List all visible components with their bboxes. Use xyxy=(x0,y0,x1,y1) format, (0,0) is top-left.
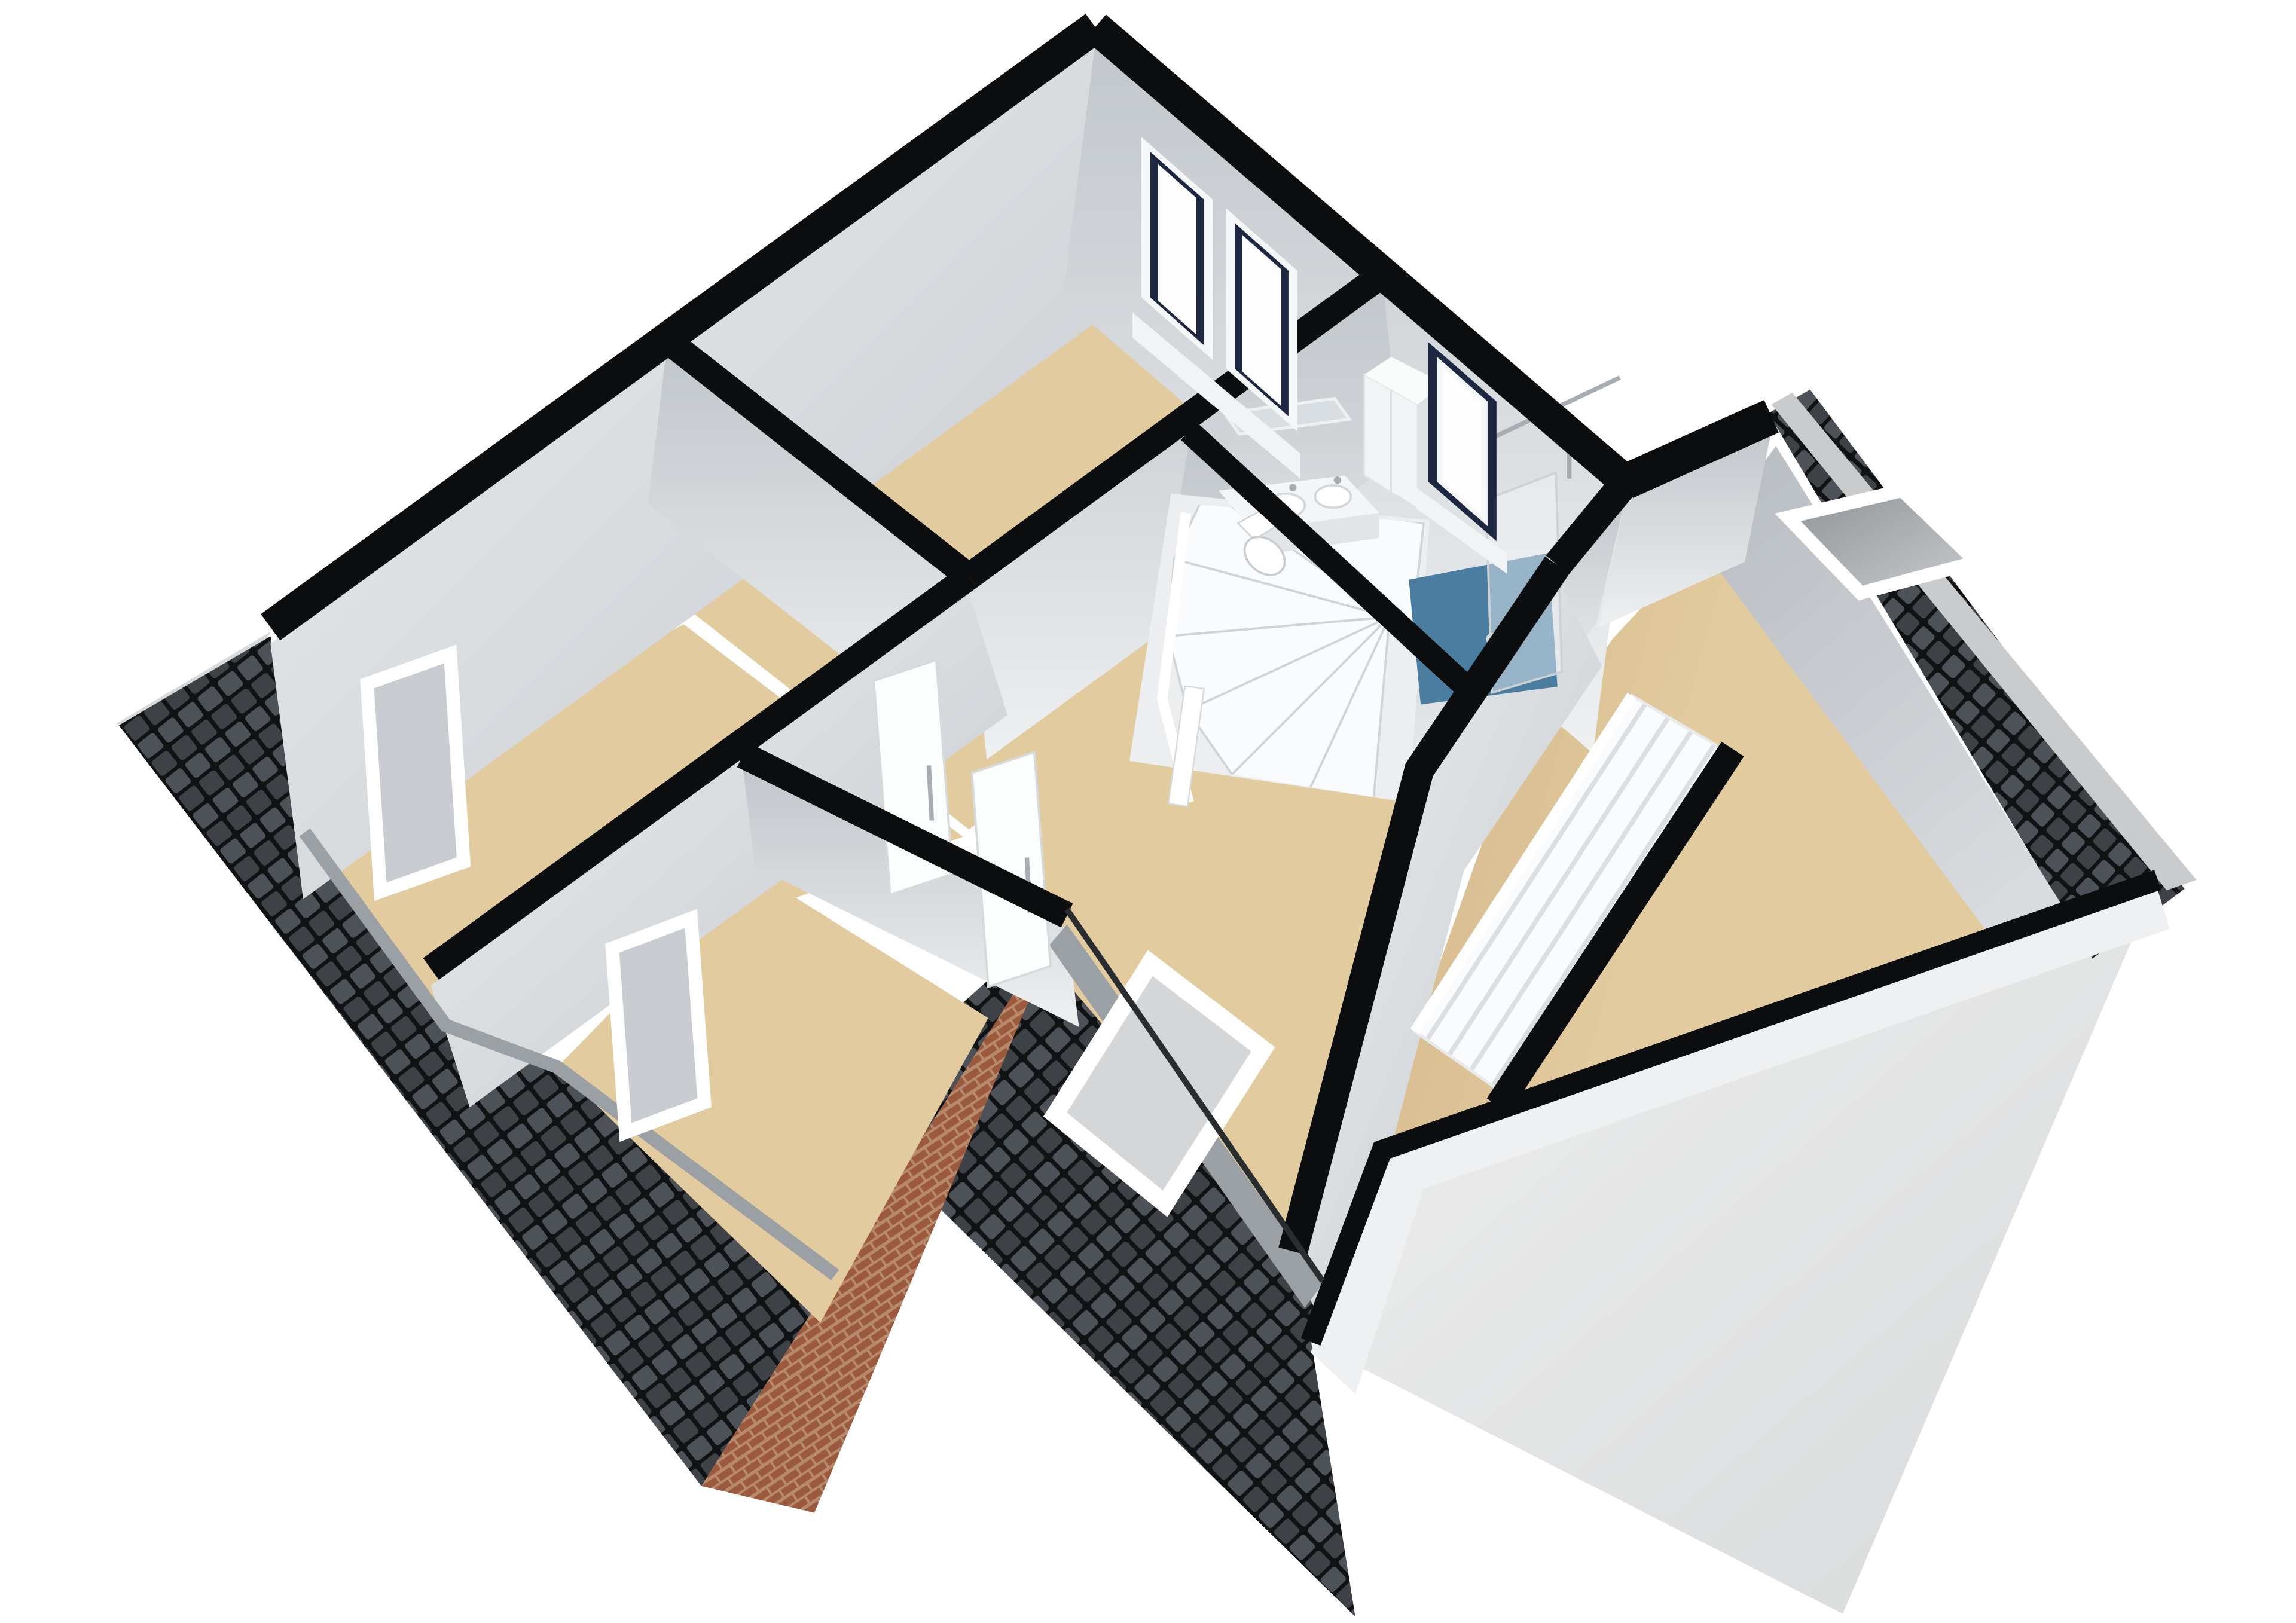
door-handle xyxy=(929,765,932,820)
faucet xyxy=(1334,476,1341,484)
door-frame-bedroom-left xyxy=(367,654,464,892)
floorplan-3d xyxy=(0,0,2296,1623)
floorplan-3d-stage xyxy=(0,0,2296,1623)
door-frame-room-small xyxy=(612,918,704,1132)
faucet xyxy=(1289,484,1296,491)
basin xyxy=(1315,485,1351,508)
